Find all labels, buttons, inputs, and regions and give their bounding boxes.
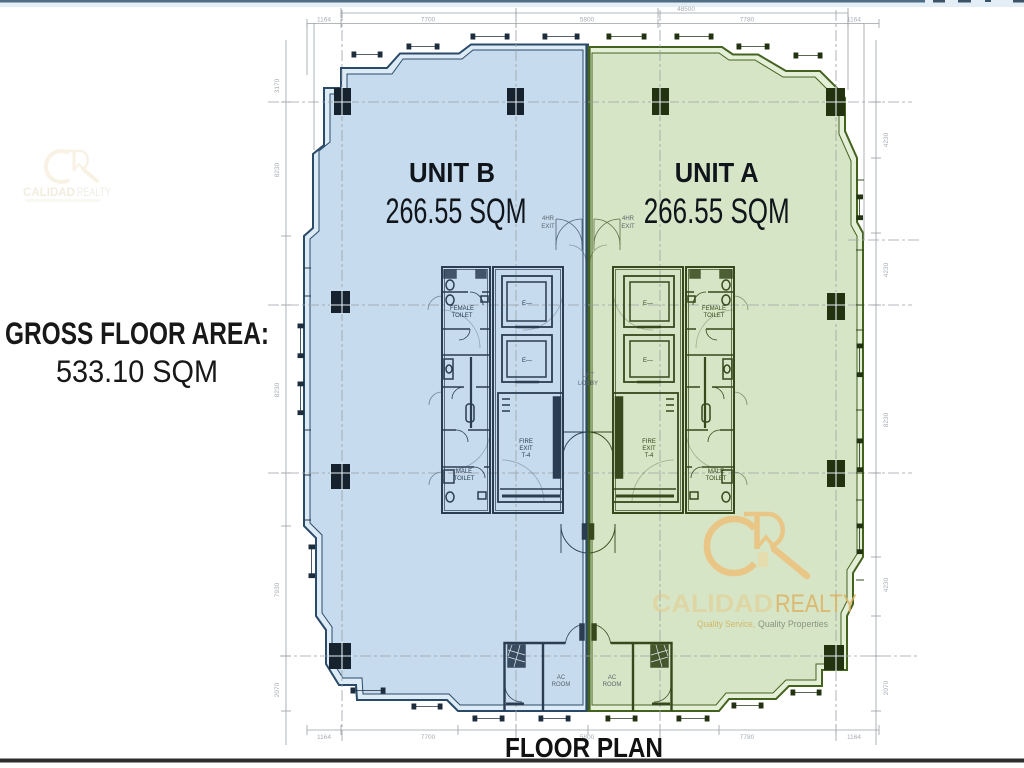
svg-text:AC: AC	[557, 675, 566, 681]
svg-text:8230: 8230	[883, 412, 890, 427]
svg-text:5800: 5800	[580, 17, 595, 24]
svg-text:TOILET: TOILET	[704, 313, 725, 319]
svg-text:266.55 SQM: 266.55 SQM	[644, 192, 790, 231]
svg-text:LOBBY: LOBBY	[578, 381, 598, 387]
svg-text:3170: 3170	[274, 78, 281, 93]
svg-text:E—: E—	[522, 301, 532, 307]
svg-text:7780: 7780	[740, 17, 755, 24]
svg-text:CALIDAD: CALIDAD	[23, 187, 75, 199]
svg-text:7700: 7700	[421, 17, 436, 24]
svg-text:CALIDAD: CALIDAD	[652, 590, 773, 618]
svg-text:ROOM: ROOM	[552, 682, 571, 688]
svg-text:1164: 1164	[847, 734, 861, 741]
svg-text:EXIT: EXIT	[642, 446, 656, 452]
svg-text:4230: 4230	[883, 132, 890, 147]
svg-text:EXIT: EXIT	[621, 224, 635, 230]
svg-text:7780: 7780	[740, 734, 755, 741]
svg-text:ROOM: ROOM	[603, 682, 622, 688]
svg-text:Quality Service,: Quality Service,	[697, 619, 755, 630]
svg-text:REALTY: REALTY	[775, 590, 857, 618]
svg-text:MALE: MALE	[456, 469, 472, 475]
svg-text:TOILET: TOILET	[706, 476, 727, 482]
svg-text:1164: 1164	[847, 17, 861, 24]
svg-text:FEMALE: FEMALE	[702, 306, 726, 312]
svg-text:TOILET: TOILET	[452, 313, 473, 319]
svg-text:266.55 SQM: 266.55 SQM	[386, 192, 527, 231]
svg-text:4HR: 4HR	[622, 216, 635, 222]
svg-text:1164: 1164	[317, 734, 331, 741]
svg-text:MALE: MALE	[708, 469, 724, 475]
svg-text:E—: E—	[522, 358, 532, 364]
svg-text:8230: 8230	[274, 382, 281, 397]
svg-text:E—: E—	[643, 301, 653, 307]
svg-text:REALTY: REALTY	[77, 187, 111, 199]
svg-text:48500: 48500	[677, 6, 695, 13]
svg-text:8230: 8230	[274, 162, 281, 177]
svg-text:EXIT: EXIT	[519, 446, 533, 452]
svg-text:T-4: T-4	[645, 453, 654, 459]
svg-text:GROSS FLOOR AREA:: GROSS FLOOR AREA:	[5, 315, 269, 351]
svg-text:FLOOR PLAN: FLOOR PLAN	[505, 732, 663, 763]
svg-text:FIRE: FIRE	[519, 439, 533, 445]
svg-text:533.10 SQM: 533.10 SQM	[56, 353, 218, 389]
svg-text:UNIT B: UNIT B	[409, 157, 495, 188]
svg-text:1164: 1164	[317, 17, 331, 24]
svg-text:TOILET: TOILET	[454, 476, 475, 482]
svg-text:7930: 7930	[274, 582, 281, 597]
svg-text:UNIT A: UNIT A	[675, 157, 759, 188]
svg-text:T-4: T-4	[522, 453, 531, 459]
svg-text:7700: 7700	[421, 734, 436, 741]
svg-text:AC: AC	[608, 675, 617, 681]
svg-text:FIRE: FIRE	[642, 439, 656, 445]
svg-text:2070: 2070	[883, 680, 890, 695]
svg-text:E—: E—	[643, 358, 653, 364]
svg-text:LIFT: LIFT	[582, 373, 595, 379]
svg-text:2070: 2070	[274, 682, 281, 697]
svg-text:EXIT: EXIT	[541, 224, 555, 230]
svg-text:4HR: 4HR	[542, 216, 555, 222]
svg-text:Quality Properties: Quality Properties	[758, 619, 828, 630]
svg-text:FEMALE: FEMALE	[450, 306, 474, 312]
svg-text:4230: 4230	[883, 577, 890, 592]
svg-text:4230: 4230	[883, 262, 890, 277]
